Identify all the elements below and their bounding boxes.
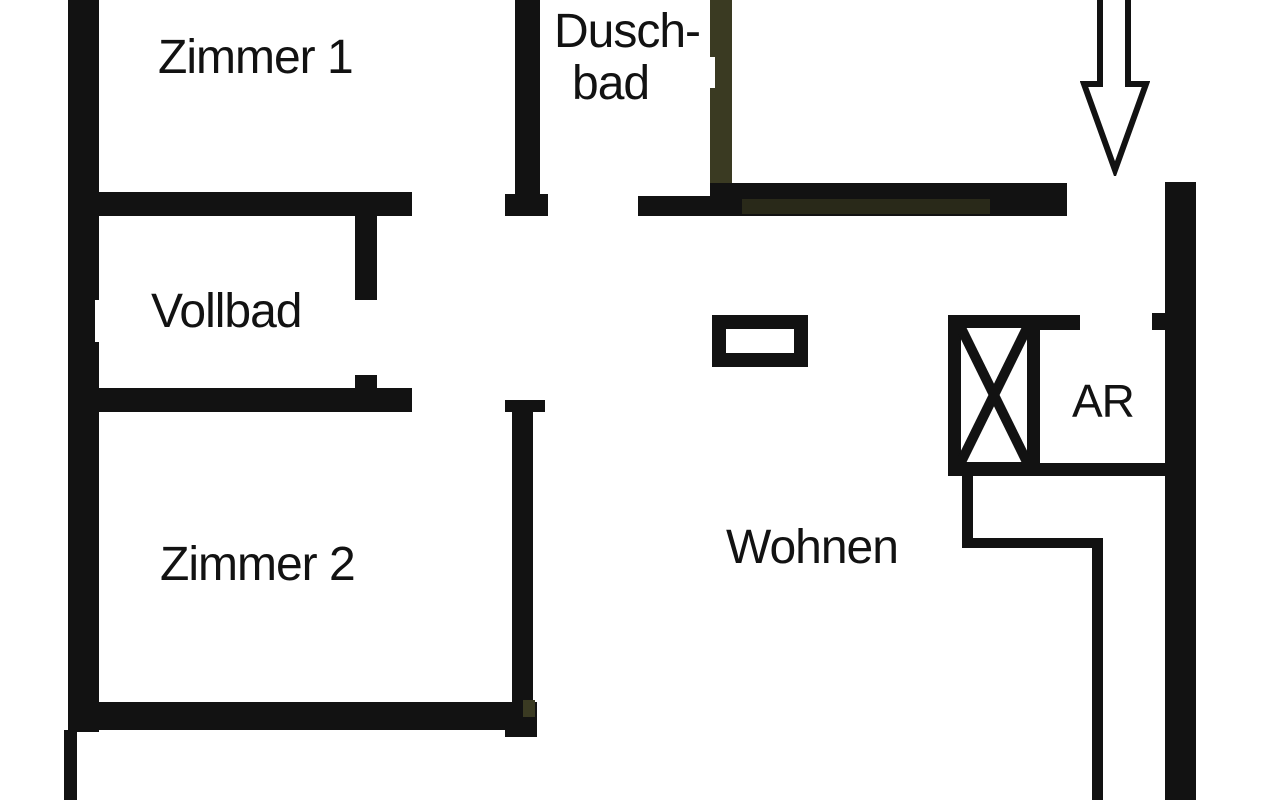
- pillar-rect: [712, 315, 808, 367]
- room-label-zimmer-1: Zimmer 1: [158, 34, 353, 82]
- duschbad-west-wall: [515, 0, 540, 194]
- zimmer2-east-wall: [512, 400, 533, 702]
- entrance-arrow-icon: [1080, 0, 1150, 176]
- vollbad-south-wall: [68, 388, 412, 412]
- room-label-duschbad-line1: Dusch-: [554, 8, 700, 56]
- right-outer-wall: [1165, 182, 1196, 800]
- ar-door-stub: [1152, 313, 1165, 330]
- zimmer1-door-jamb: [505, 194, 548, 216]
- left-wall-window-notch: [95, 300, 100, 342]
- shaft-x-symbol: [948, 315, 1040, 475]
- zimmer1-south-wall: [68, 192, 412, 216]
- room-label-duschbad-line2: bad: [572, 60, 649, 108]
- outer-thin-wall-bottom-left: [64, 730, 77, 800]
- room-label-wohnen: Wohnen: [726, 524, 898, 572]
- hall-band-thin: [638, 196, 712, 216]
- left-outer-wall: [68, 0, 99, 732]
- zimmer2-corner-foot: [505, 728, 537, 737]
- corner-olive-patch: [523, 700, 535, 717]
- zimmer2-south-wall: [68, 702, 537, 730]
- room-label-ar: AR: [1072, 378, 1134, 424]
- entry-band-olive-tint: [742, 199, 990, 214]
- duschbad-door-notch: [710, 57, 715, 88]
- room-label-vollbad: Vollbad: [151, 288, 301, 336]
- step-wall-horizontal: [962, 538, 1103, 548]
- room-label-zimmer-2: Zimmer 2: [160, 541, 355, 589]
- vollbad-east-wall: [355, 216, 377, 300]
- duschbad-east-wall: [710, 0, 732, 183]
- floor-plan: Zimmer 1 Dusch- bad Vollbad Zimmer 2 Woh…: [0, 0, 1280, 800]
- step-wall-vertical-2: [1092, 548, 1103, 800]
